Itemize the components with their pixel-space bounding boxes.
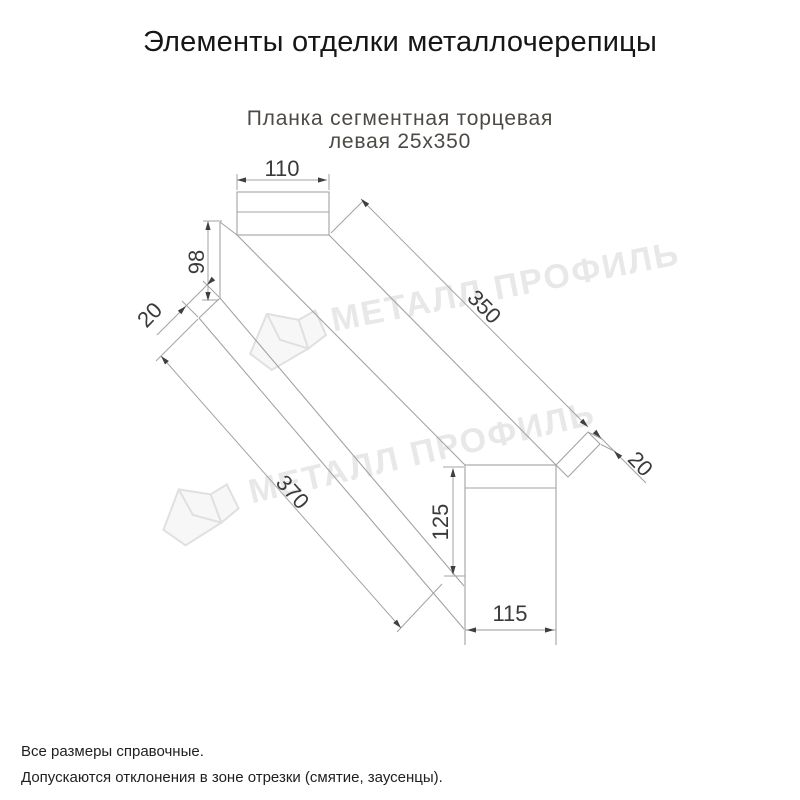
arrowhead [450,468,455,477]
dim-label-125: 125 [428,504,453,541]
dim-end-cap-width: 115 [467,601,554,633]
footer-note-line2: Допускаются отклонения в зоне отрезки (с… [21,765,721,791]
dim-label-115: 115 [492,601,527,626]
arrowhead [318,177,327,182]
dim-label-110: 110 [264,156,299,181]
dim-label-20-far: 20 [623,446,658,481]
drawing-sheet: Элементы отделки металлочерепицы Планка … [0,0,800,800]
dim-end-cap-height: 125 [428,467,465,576]
arrowhead [545,627,554,632]
dim-far-hem: 20 [589,430,658,483]
dim-label-20-near: 20 [132,297,167,332]
dim-label-98: 98 [184,250,209,274]
top-flange-face [237,192,329,235]
metal-profile-logo-icon [155,477,244,549]
footer-note-line1: Все размеры справочные. [21,739,721,765]
arrowhead [205,221,210,230]
watermark-lower: МЕТАЛЛ ПРОФИЛЬ [155,394,603,549]
dim-top-flange-width: 110 [237,156,329,190]
near-end-bevel-edge [220,222,237,235]
technical-drawing: МЕТАЛЛ ПРОФИЛЬ МЕТАЛЛ ПРОФИЛЬ [0,0,800,800]
arrowhead [467,627,476,632]
near-end-hem-edge [199,298,220,318]
footer-notes: Все размеры справочные. Допускаются откл… [21,739,721,791]
watermark-text: МЕТАЛЛ ПРОФИЛЬ [328,234,683,339]
metal-profile-logo-icon [243,304,330,374]
arrowhead [237,177,246,182]
strip-bottom-hem-edge [199,318,464,629]
